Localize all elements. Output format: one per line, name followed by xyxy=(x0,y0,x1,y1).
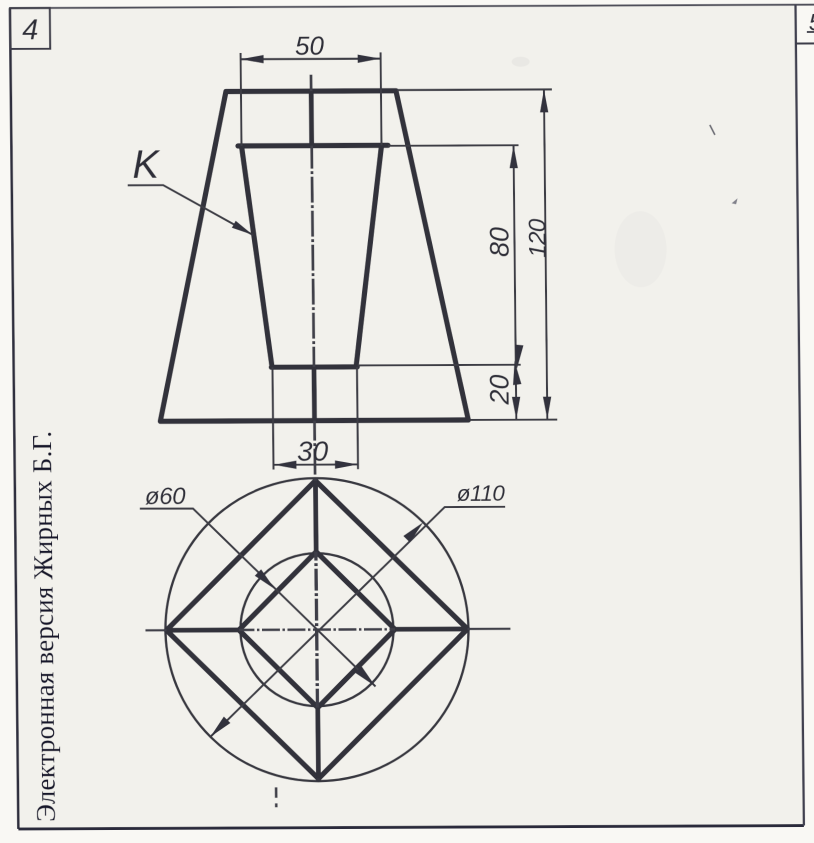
svg-text:20: 20 xyxy=(484,374,514,405)
svg-text:K: K xyxy=(132,143,161,187)
svg-text:50: 50 xyxy=(295,31,325,61)
svg-text:ø60: ø60 xyxy=(145,483,187,510)
svg-text:80: 80 xyxy=(484,227,514,257)
svg-text:4: 4 xyxy=(22,14,38,46)
svg-text:ø110: ø110 xyxy=(457,481,506,506)
svg-text:120: 120 xyxy=(524,218,551,258)
svg-text:Электронная версия Жирных Б.Г.: Электронная версия Жирных Б.Г. xyxy=(27,431,61,822)
svg-text:30: 30 xyxy=(297,436,329,467)
